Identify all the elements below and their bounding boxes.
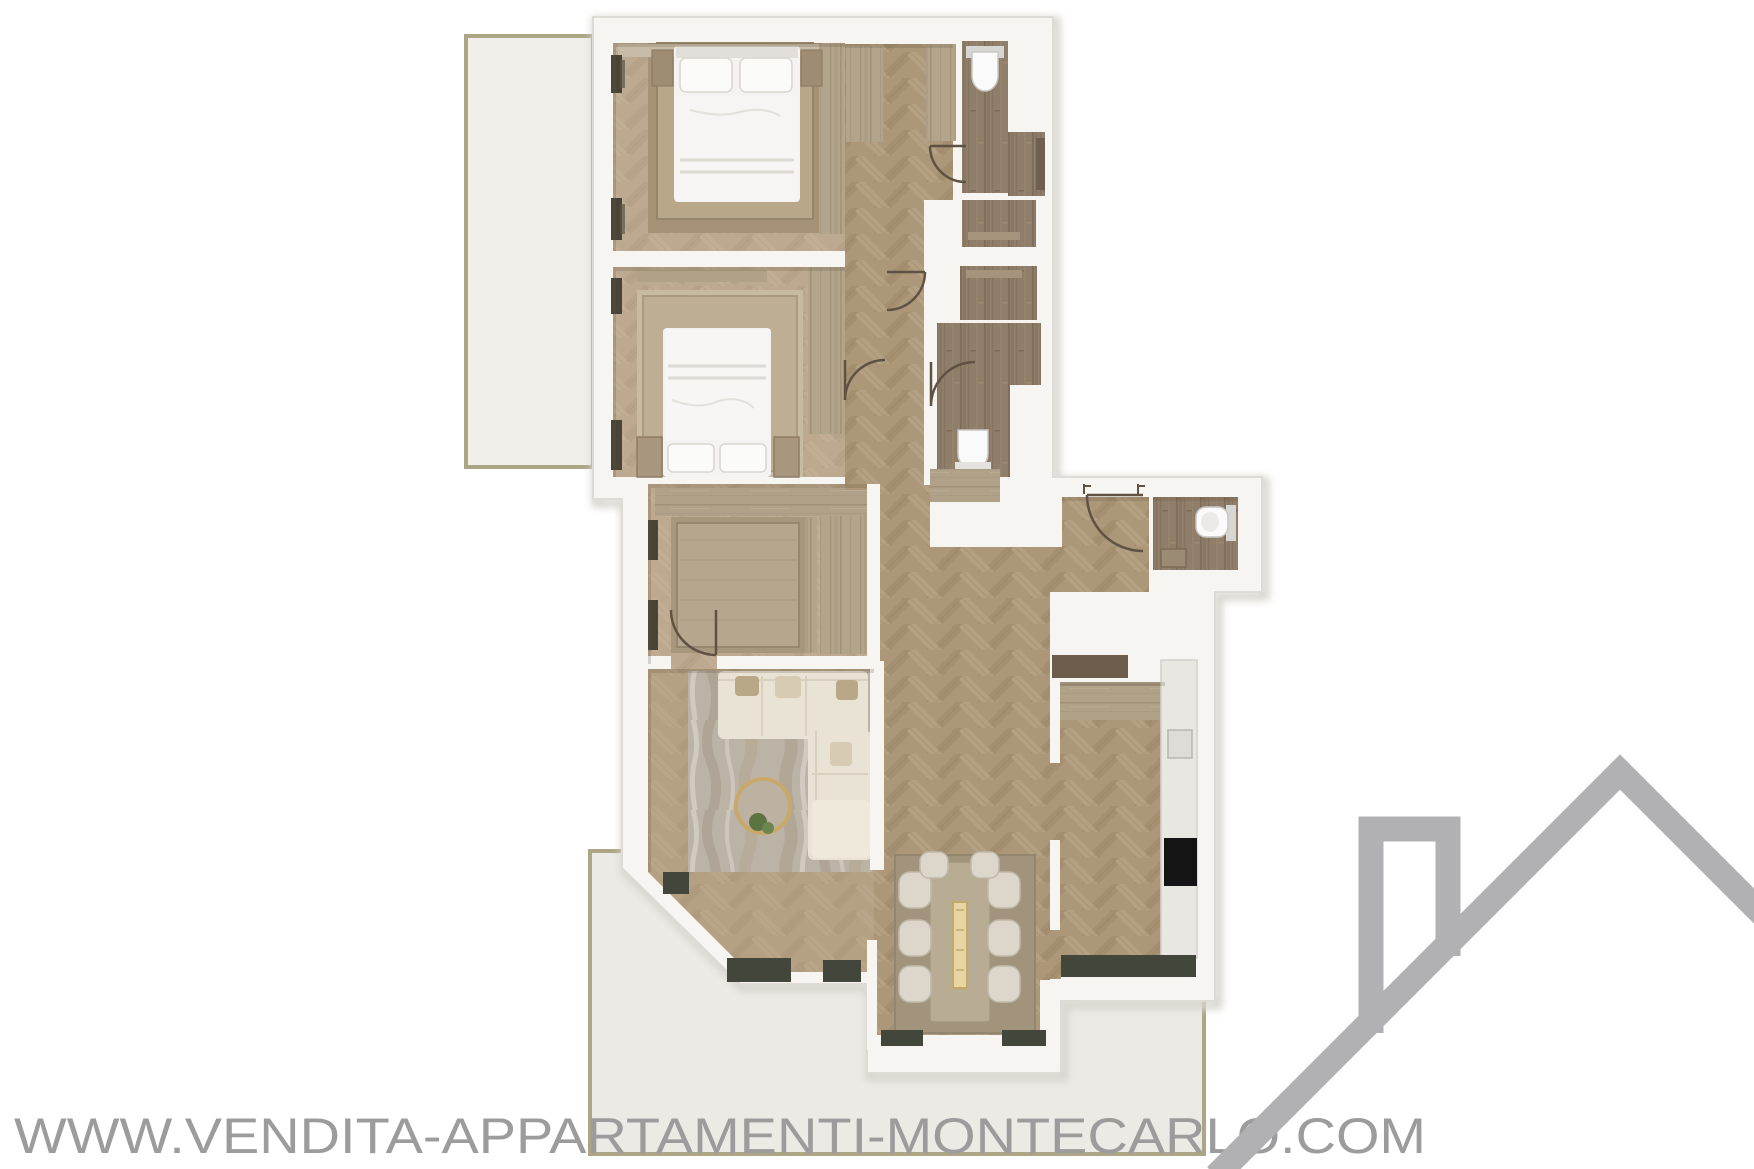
- svg-text:WWW.VENDITA-APPARTAMENTI-MONTE: WWW.VENDITA-APPARTAMENTI-MONTECARLO.COM: [14, 1108, 1426, 1164]
